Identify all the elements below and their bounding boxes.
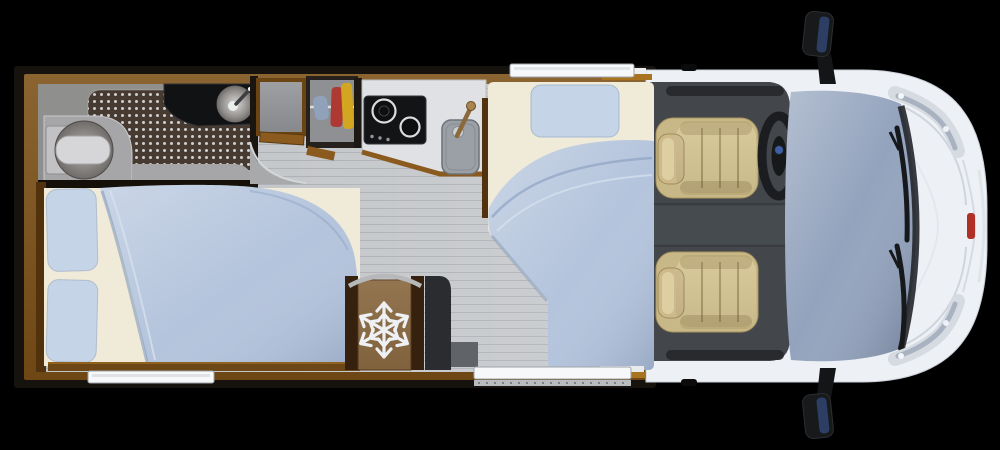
- driver-seat: [656, 252, 758, 332]
- cab-floor-center: [650, 206, 788, 244]
- rear-double-bed: [36, 182, 360, 372]
- fridge-wood-left: [345, 276, 358, 370]
- bathroom-wall-band: [132, 164, 252, 182]
- burner-small: [401, 118, 420, 137]
- burner-large: [373, 100, 396, 123]
- bed-side-wood: [482, 98, 488, 218]
- door-handle: [681, 64, 697, 71]
- top-window: [510, 64, 634, 77]
- rear-left-window-frame: [92, 374, 210, 377]
- headlight-glint: [898, 93, 904, 99]
- top-window-frame: [514, 67, 630, 70]
- front-badge: [967, 213, 975, 239]
- cooktop-knob: [370, 135, 373, 138]
- side-panel: [425, 276, 451, 370]
- headlight-glint: [943, 320, 949, 326]
- cooktop-knob: [386, 138, 389, 141]
- entry-door-window: [474, 367, 631, 379]
- door-handle: [681, 379, 697, 386]
- fridge-wood-right: [411, 276, 424, 370]
- toilet-seat: [56, 136, 110, 164]
- door-window-slit: [666, 86, 784, 96]
- cabinet-shade: [260, 82, 302, 132]
- pillow: [46, 188, 98, 271]
- floorplan-canvas: [0, 0, 1000, 450]
- toilet: [46, 121, 113, 179]
- mirror-arm: [817, 54, 836, 84]
- single-pillow: [531, 85, 619, 137]
- faucet-knob: [467, 102, 476, 111]
- passenger-seat: [656, 118, 758, 198]
- door-window-slit: [666, 350, 784, 360]
- cooktop-knob: [378, 136, 381, 139]
- entry-step: [451, 342, 478, 367]
- pillow: [46, 279, 98, 362]
- headlight-glint: [898, 353, 904, 359]
- steering-wheel-badge: [775, 146, 784, 155]
- closet-side-wall: [354, 78, 362, 148]
- cooktop: [364, 96, 426, 144]
- headlight-glint: [943, 126, 949, 132]
- motorhome-floorplan: [0, 0, 1000, 450]
- wheel-hub: [772, 136, 787, 176]
